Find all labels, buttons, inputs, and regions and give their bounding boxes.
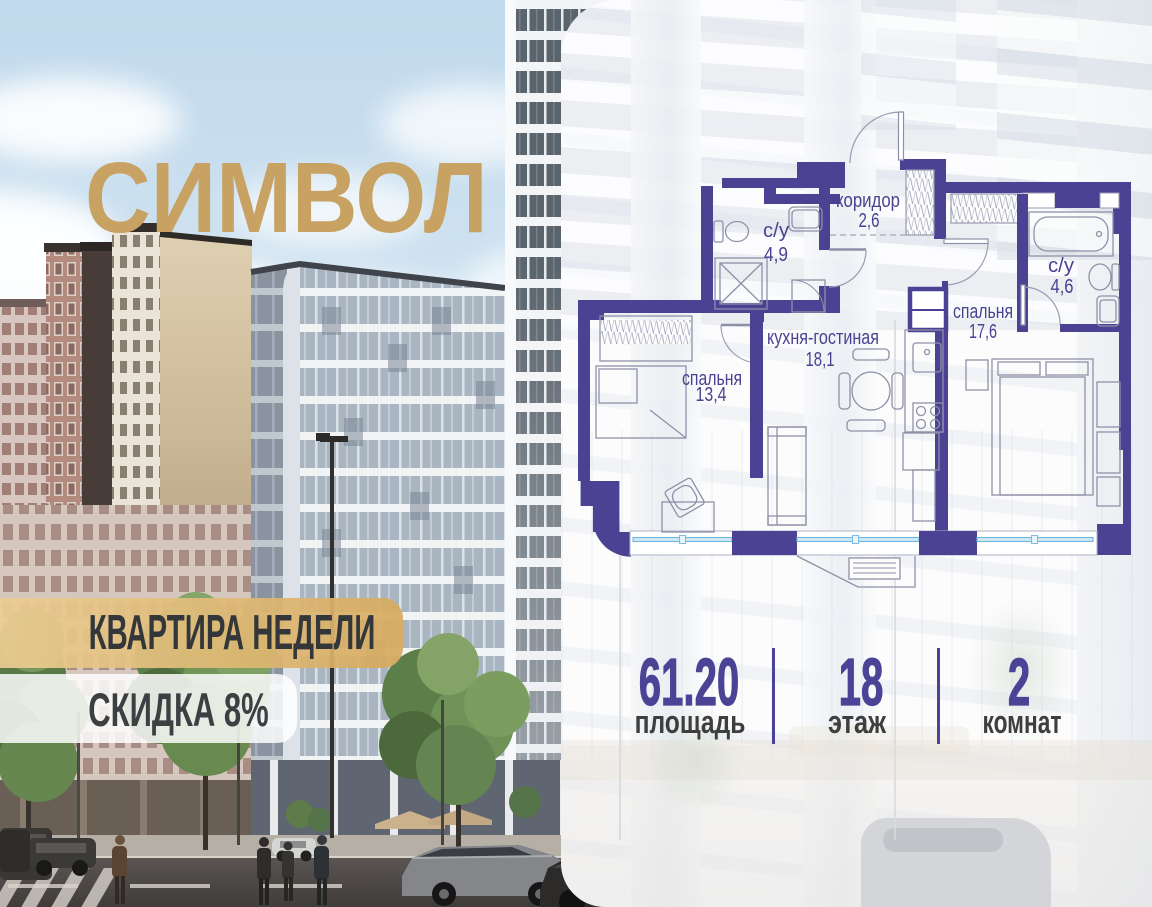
svg-text:с/у: с/у — [763, 220, 789, 242]
svg-text:с/у: с/у — [1048, 255, 1074, 277]
svg-text:спальня: спальня — [953, 301, 1013, 323]
svg-text:кухня-гостиная: кухня-гостиная — [767, 327, 879, 349]
svg-text:коридор: коридор — [836, 190, 900, 212]
svg-text:4,6: 4,6 — [1051, 276, 1074, 298]
svg-text:2,6: 2,6 — [859, 210, 880, 232]
svg-text:17,6: 17,6 — [969, 321, 997, 343]
svg-text:4,9: 4,9 — [764, 244, 788, 266]
svg-text:18,1: 18,1 — [806, 349, 835, 371]
svg-text:13,4: 13,4 — [696, 384, 727, 406]
